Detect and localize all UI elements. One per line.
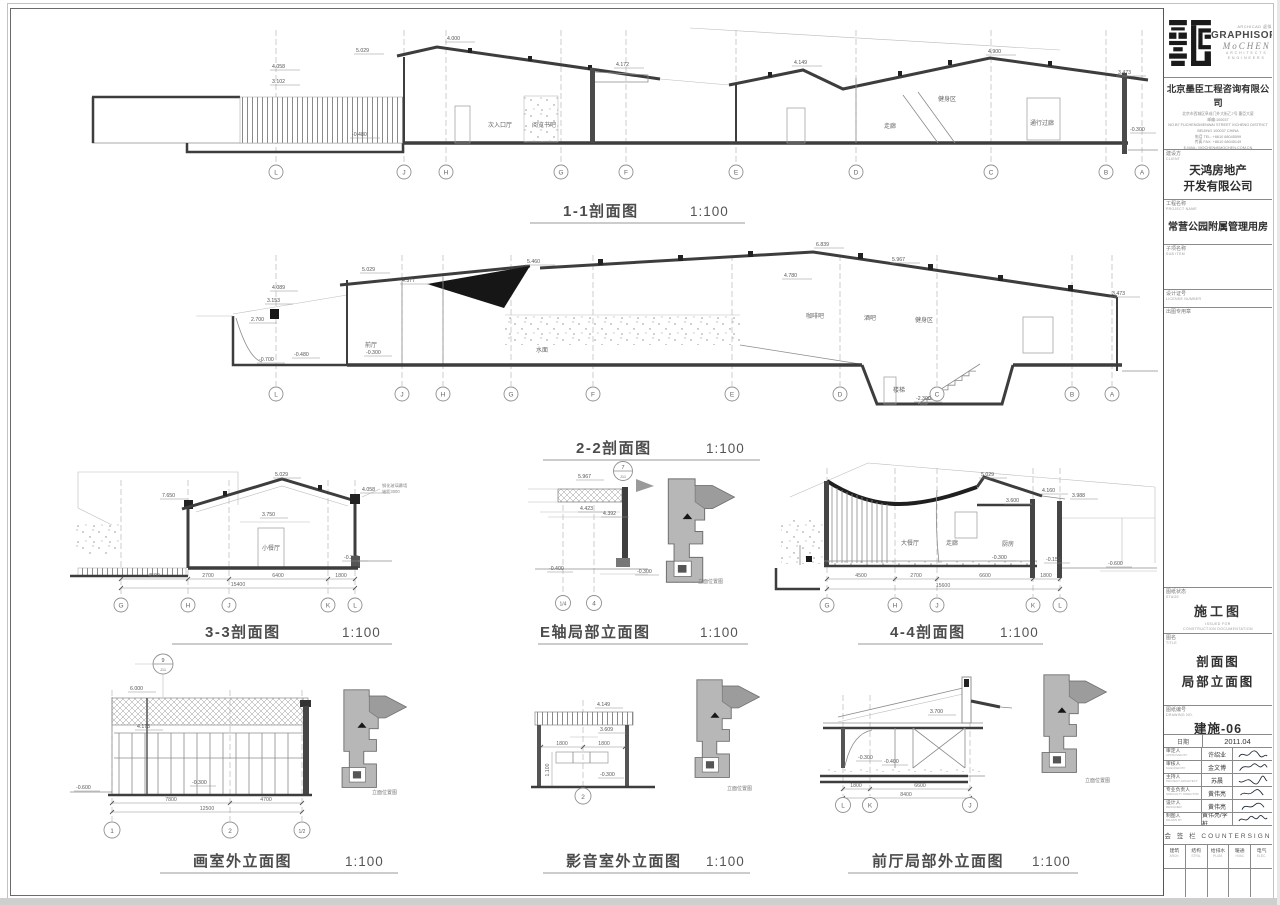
room-label: 水面 bbox=[536, 346, 548, 354]
dim-label: 6600 bbox=[979, 573, 991, 579]
level-label: -0.480 bbox=[294, 352, 309, 358]
drawing-number-section: 图纸编号 DRAWING NO. 建施-06 bbox=[1164, 706, 1272, 735]
client-name: 天鸿房地产 开发有限公司 bbox=[1164, 164, 1272, 195]
grid-bubble-label: E bbox=[734, 170, 739, 177]
signature bbox=[1233, 813, 1272, 825]
room-label: 健身区 bbox=[938, 95, 956, 103]
drawing-scale: 1:100 bbox=[706, 854, 745, 869]
tree-speckle bbox=[781, 520, 823, 564]
grid-bubble-label: J bbox=[402, 170, 405, 177]
room-label: 楼梯 bbox=[893, 386, 905, 394]
dim-label: 7800 bbox=[165, 797, 177, 803]
drawing-scale: 1:100 bbox=[345, 854, 384, 869]
grid-bubble-label: 1/2 bbox=[299, 829, 306, 835]
grid-bubble-label: G bbox=[824, 603, 829, 610]
grid-bubble-label: K bbox=[1031, 603, 1036, 610]
level-label: -0.300 bbox=[1130, 127, 1145, 133]
person-name: 许绍业 bbox=[1202, 748, 1233, 760]
date-label: 日期 bbox=[1164, 735, 1203, 747]
dim-label: 4500 bbox=[855, 573, 867, 579]
level-label: 4.160 bbox=[1042, 488, 1055, 494]
grid-bubbles-3-3: G H J K L bbox=[114, 598, 362, 612]
grid-bubble-label: G bbox=[508, 392, 513, 399]
room-label: 次入口厅 bbox=[488, 121, 512, 129]
drawing-scale: 1:100 bbox=[1000, 625, 1039, 640]
stage-value-en: ISSUED FOR CONSTRUCTION DOCUMENTATION bbox=[1164, 622, 1272, 633]
date-value: 2011.04 bbox=[1203, 735, 1272, 747]
grid-bubble-label: D bbox=[854, 170, 859, 177]
grid-bubble-label: J bbox=[968, 803, 971, 810]
firm-logo-area: ARCHICAD 虚拟建筑 GRAPHISOFT MoCHEN ARCHITEC… bbox=[1164, 8, 1272, 78]
drawing-title: 画室外立面图 bbox=[193, 852, 292, 870]
cut-column bbox=[622, 487, 628, 564]
countersign-header: 建筑ARCH. 结构STRU. 给排水PLUM. 暖通HVAC 电气ELEC. bbox=[1164, 845, 1272, 868]
dim-label: 1800 bbox=[556, 741, 568, 747]
dim-label: 1800 bbox=[850, 783, 862, 789]
section-2-2-drawing: 5.029 4.577 5.460 4.089 3.153 2.700 6.83… bbox=[196, 242, 1158, 460]
client-section: 建设方 CLIENT 天鸿房地产 开发有限公司 bbox=[1164, 150, 1272, 200]
room-label: 走廊 bbox=[946, 539, 958, 547]
drawing-title: 3-3剖面图 bbox=[205, 623, 281, 641]
level-label: 4.900 bbox=[988, 49, 1001, 55]
mochen-wordmark: MoCHEN bbox=[1211, 41, 1272, 51]
grid-bubbles-2-2: L J H G F E D C B A bbox=[269, 387, 1119, 401]
level-label: -0.300 bbox=[600, 772, 615, 778]
level-label: 7.650 bbox=[162, 493, 175, 499]
drawing-title: 前厅局部外立面图 bbox=[872, 852, 1004, 870]
person-name: 苏晨 bbox=[1202, 774, 1233, 786]
dim-label: 2700 bbox=[202, 573, 214, 579]
room-label: 厨房 bbox=[1002, 540, 1014, 548]
title-block: ARCHICAD 虚拟建筑 GRAPHISOFT MoCHEN ARCHITEC… bbox=[1163, 8, 1272, 896]
level-label: -0.300 bbox=[992, 555, 1007, 561]
grid-bubble-label: 1 bbox=[110, 828, 114, 835]
grid-bubble-label: H bbox=[186, 603, 191, 610]
dim-label: 6400 bbox=[272, 573, 284, 579]
vertical-dim-label: 1.100 bbox=[545, 763, 551, 776]
signature bbox=[1233, 800, 1272, 812]
grid-bubble-label: L bbox=[274, 392, 278, 399]
level-label: 4.423 bbox=[580, 506, 593, 512]
grid-bubble-label: J bbox=[400, 392, 403, 399]
keymap-profile bbox=[342, 690, 406, 788]
level-label: 4.089 bbox=[272, 285, 285, 291]
facade-band-hatch bbox=[112, 698, 308, 725]
grid-bubble-label: 2 bbox=[228, 828, 232, 835]
level-label: 5.029 bbox=[362, 267, 375, 273]
level-label: -0.600 bbox=[76, 785, 91, 791]
level-label: 4.780 bbox=[784, 273, 797, 279]
grid-bubbles-4-4: G H J K L bbox=[820, 598, 1067, 612]
drawing-number: 建施-06 bbox=[1164, 718, 1272, 735]
drawing-scale: 1:100 bbox=[700, 625, 739, 640]
grid-bubble-label: B bbox=[1104, 170, 1108, 177]
detail-ref-number: 7 bbox=[621, 465, 624, 471]
grid-bubble-label: G bbox=[118, 603, 123, 610]
keymap-label: 立面位置图 bbox=[698, 578, 723, 585]
mochen-seal-logo bbox=[1169, 20, 1211, 66]
grid-bubble-label: G bbox=[558, 170, 563, 177]
grid-bubble-label: A bbox=[1140, 170, 1145, 177]
scan-edge-bottom bbox=[0, 898, 1280, 905]
room-label: 大餐厅 bbox=[901, 539, 919, 547]
grid-bubble-label: L bbox=[1058, 603, 1062, 610]
grid-bubble-label: 1/4 bbox=[560, 602, 567, 608]
drawing-title: 4-4剖面图 bbox=[890, 623, 966, 641]
signature bbox=[1233, 787, 1272, 799]
grid-bubble-label: F bbox=[624, 170, 628, 177]
section-4-4-drawing: 5.029 3.600 4.160 3.988 -0.300 -0.150 -0… bbox=[776, 463, 1157, 644]
level-label: -0.400 bbox=[884, 759, 899, 765]
dim-label: 1800 bbox=[335, 573, 347, 579]
drawing-scale: 1:100 bbox=[706, 441, 745, 456]
keymap-profile bbox=[666, 479, 734, 582]
level-label: 6.000 bbox=[130, 686, 143, 692]
level-label: 3.473 bbox=[1118, 70, 1131, 76]
drawing-title: 影音室外立面图 bbox=[566, 852, 682, 870]
level-label: 4.000 bbox=[447, 36, 460, 42]
design-firm-section: 北京墨臣工程咨询有限公司 北京市西城区阜成门外大街乙7号 墨臣大厦 邮编:100… bbox=[1164, 78, 1272, 150]
room-label: 走廊 bbox=[884, 122, 896, 130]
level-label: 5.029 bbox=[981, 472, 994, 478]
room-label: 通行过廊 bbox=[1030, 119, 1054, 127]
water-speckle bbox=[505, 315, 740, 345]
level-label: 3.600 bbox=[1006, 498, 1019, 504]
drawing-scale: 1:100 bbox=[342, 625, 381, 640]
personnel-row: 设计人DESIGNER 黄伟亮 bbox=[1164, 800, 1272, 813]
louver-screen bbox=[240, 97, 403, 143]
date-row: 日期 2011.04 bbox=[1164, 735, 1272, 748]
grid-bubble-label: K bbox=[326, 603, 331, 610]
level-label: 5.967 bbox=[892, 257, 905, 263]
foyer-elevation-drawing: 3.700 -0.300 -0.400 1800 6600 8400 L K J… bbox=[820, 675, 1110, 873]
dim-total-label: 12500 bbox=[200, 806, 215, 812]
room-label: 小餐厅 bbox=[262, 544, 280, 552]
level-label: 4.149 bbox=[794, 60, 807, 66]
grid-bubbles-1-1: L J H G F E D C B A bbox=[269, 165, 1149, 179]
level-label: 3.750 bbox=[262, 512, 275, 518]
detail-ref-number: 9 bbox=[161, 658, 164, 664]
countersign-empty-row bbox=[1164, 868, 1272, 897]
level-label: -0.300 bbox=[344, 555, 359, 561]
project-section: 工程名称 PROJECT NAME 常营公园附属管理用房 bbox=[1164, 200, 1272, 245]
level-label: -0.300 bbox=[858, 755, 873, 761]
dim-label: 4500 bbox=[148, 573, 160, 579]
grid-bubble-label: J bbox=[935, 603, 938, 610]
dim-label: 1800 bbox=[1040, 573, 1052, 579]
personnel-row: 制图人DRAWN BY 黄伟亮/李桩 bbox=[1164, 813, 1272, 826]
level-label: -0.300 bbox=[192, 780, 207, 786]
level-label: 5.029 bbox=[356, 48, 369, 54]
drawing-title: E轴局部立面图 bbox=[540, 623, 651, 641]
level-label: 3.609 bbox=[600, 727, 613, 733]
roof-band-hatch bbox=[558, 489, 622, 502]
annotation: 轴距3000 bbox=[382, 488, 400, 495]
sail-roof bbox=[827, 481, 977, 504]
grid-bubbles-av: 2 bbox=[575, 788, 591, 804]
level-label: 4.577 bbox=[402, 278, 415, 284]
level-label: -0.700 bbox=[259, 357, 274, 363]
grid-bubble-label: B bbox=[1070, 392, 1074, 399]
countersign-bar: 会 签 栏 COUNTERSIGN bbox=[1164, 826, 1272, 845]
person-name: 黄伟亮/李桩 bbox=[1202, 813, 1233, 825]
studio-elevation-drawing: 9 J11 6.000 4.173 -0.300 -0.600 7800 470… bbox=[70, 654, 406, 873]
keymap-label: 立面位置图 bbox=[372, 789, 397, 796]
level-label: 4.149 bbox=[597, 702, 610, 708]
level-label: 2.700 bbox=[251, 317, 264, 323]
level-label: -0.150 bbox=[1046, 557, 1061, 563]
level-label: 3.153 bbox=[267, 298, 280, 304]
design-firm-name: 北京墨臣工程咨询有限公司 bbox=[1164, 81, 1272, 109]
room-label: 前厅 bbox=[365, 341, 377, 349]
room-label: 阅览书吧 bbox=[532, 121, 556, 129]
level-label: -0.480 bbox=[352, 132, 367, 138]
level-label: -0.300 bbox=[637, 569, 652, 575]
level-label: 4.058 bbox=[362, 487, 375, 493]
drawing-sheet: 5.029 4.058 3.102 4.000 4.172 4.149 4.90… bbox=[0, 0, 1280, 905]
section-3-3-drawing: 钢化玻璃幕墙 轴距3000 7.650 5.029 4.058 3.750 -0… bbox=[70, 472, 407, 644]
grid-bubble-label: K bbox=[868, 803, 873, 810]
grid-bubble-label: D bbox=[838, 392, 843, 399]
av-room-elevation-drawing: 4.149 3.609 -0.300 1800 1800 1.100 2 立面位… bbox=[531, 680, 759, 873]
level-label: 4.058 bbox=[272, 64, 285, 70]
level-label: 5.967 bbox=[578, 474, 591, 480]
level-label: 6.839 bbox=[816, 242, 829, 248]
facade-band-hatch bbox=[535, 712, 633, 725]
firm-subtitle: ENGINEERS bbox=[1211, 56, 1272, 61]
keymap-profile bbox=[1042, 675, 1106, 773]
section-1-1-drawing: 5.029 4.058 3.102 4.000 4.172 4.149 4.90… bbox=[92, 28, 1158, 223]
person-name: 金文博 bbox=[1202, 761, 1233, 773]
level-label: 3.988 bbox=[1072, 493, 1085, 499]
room-label: 酒吧 bbox=[864, 314, 876, 322]
annotation: 钢化玻璃幕墙 bbox=[382, 482, 407, 489]
dim-total-label: 15600 bbox=[936, 583, 951, 589]
grid-bubble-label: 2 bbox=[581, 794, 585, 801]
sheet-title-section: 图名 TITLE 剖面图 局部立面图 bbox=[1164, 634, 1272, 706]
keymap-label: 立面位置图 bbox=[1085, 777, 1110, 784]
grid-bubble-label: C bbox=[935, 392, 940, 399]
dim-label: 4700 bbox=[260, 797, 272, 803]
grid-bubbles-studio: 1 2 1/2 bbox=[104, 822, 310, 838]
dim-label: 2700 bbox=[910, 573, 922, 579]
detail-ref-sheet: J11 bbox=[620, 474, 627, 479]
level-label: 4.173 bbox=[137, 724, 150, 730]
room-label: 健身区 bbox=[915, 316, 933, 324]
dim-label: 6600 bbox=[914, 783, 926, 789]
design-firm-address: 北京市西城区阜成门外大街乙7号 墨臣大厦 邮编:100037 NO.B7 FUC… bbox=[1164, 112, 1272, 150]
level-label: 4.172 bbox=[616, 62, 629, 68]
level-label: -2.300 bbox=[916, 396, 931, 402]
grid-bubbles-eaxis: 1/4 4 bbox=[556, 596, 602, 611]
stage-section: 图纸状态 STAGE 施工图 ISSUED FOR CONSTRUCTION D… bbox=[1164, 588, 1272, 634]
signature bbox=[1233, 774, 1272, 786]
grid-bubble-label: A bbox=[1110, 392, 1115, 399]
license-row: 设计证号 LICENSE NUMBER bbox=[1164, 290, 1272, 308]
graphisoft-wordmark: GRAPHISOFT bbox=[1211, 30, 1272, 41]
grid-bubble-label: L bbox=[841, 803, 845, 810]
e-axis-elevation-drawing: 7 J11 5.967 4.423 4.392 -0.400 -0.300 1/… bbox=[528, 462, 748, 645]
signature bbox=[1233, 761, 1272, 773]
personnel-row: 审核人CHECKED BY 金文博 bbox=[1164, 761, 1272, 774]
level-label: 3.700 bbox=[930, 709, 943, 715]
level-label: 4.392 bbox=[603, 511, 616, 517]
drawing-canvas: 5.029 4.058 3.102 4.000 4.172 4.149 4.90… bbox=[10, 8, 1163, 896]
grid-bubble-label: L bbox=[353, 603, 357, 610]
project-name: 常营公园附属管理用房 bbox=[1164, 218, 1272, 233]
grid-bubble-label: E bbox=[730, 392, 735, 399]
stage-value: 施工图 bbox=[1164, 601, 1272, 620]
room-label: 咖啡吧 bbox=[806, 312, 824, 320]
level-label: 5.029 bbox=[275, 472, 288, 478]
subitem-section: 子项名称 SUB ITEM bbox=[1164, 245, 1272, 290]
grid-bubble-label: L bbox=[274, 170, 278, 177]
grid-bubble-label: H bbox=[441, 392, 446, 399]
planting-speckle bbox=[76, 522, 120, 556]
keymap-profile bbox=[695, 680, 759, 778]
glass-speckle-panel bbox=[524, 96, 558, 142]
grid-bubble-label: F bbox=[591, 392, 595, 399]
dim-total-label: 15400 bbox=[231, 582, 246, 588]
drawing-scale: 1:100 bbox=[1032, 854, 1071, 869]
keymap-label: 立面位置图 bbox=[727, 785, 752, 792]
level-label: -0.400 bbox=[549, 566, 564, 572]
dim-label: 1800 bbox=[598, 741, 610, 747]
personnel-row: 专业负责人SPECIALTY DIRECTOR 黄伟亮 bbox=[1164, 787, 1272, 800]
signature bbox=[1233, 748, 1272, 760]
grid-bubble-label: H bbox=[444, 170, 449, 177]
grid-bubble-label: H bbox=[893, 603, 898, 610]
person-name: 黄伟亮 bbox=[1202, 787, 1233, 799]
drawing-title: 2-2剖面图 bbox=[576, 439, 652, 457]
level-label: 5.460 bbox=[527, 259, 540, 265]
drawing-scale: 1:100 bbox=[690, 204, 729, 219]
sheet-title: 剖面图 局部立面图 bbox=[1164, 653, 1272, 692]
grid-bubble-label: C bbox=[989, 170, 994, 177]
level-label: 3.473 bbox=[1112, 291, 1125, 297]
seal-area: 出图专用章 bbox=[1164, 308, 1272, 588]
dim-total-label: 8400 bbox=[900, 792, 912, 798]
detail-ref-sheet: J11 bbox=[160, 667, 167, 672]
grid-bubbles-foyer: L K J bbox=[836, 798, 978, 813]
level-label: -0.600 bbox=[1108, 561, 1123, 567]
person-name: 黄伟亮 bbox=[1202, 800, 1233, 812]
drawing-title: 1-1剖面图 bbox=[563, 202, 639, 220]
personnel-row: 主持人PROJECT ARCHITECT 苏晨 bbox=[1164, 774, 1272, 787]
level-label: -0.300 bbox=[366, 350, 381, 356]
level-label: 3.102 bbox=[272, 79, 285, 85]
grid-bubble-label: 4 bbox=[592, 601, 596, 608]
grid-bubble-label: J bbox=[227, 603, 230, 610]
personnel-row: 审定人APPROVED BY 许绍业 bbox=[1164, 748, 1272, 761]
